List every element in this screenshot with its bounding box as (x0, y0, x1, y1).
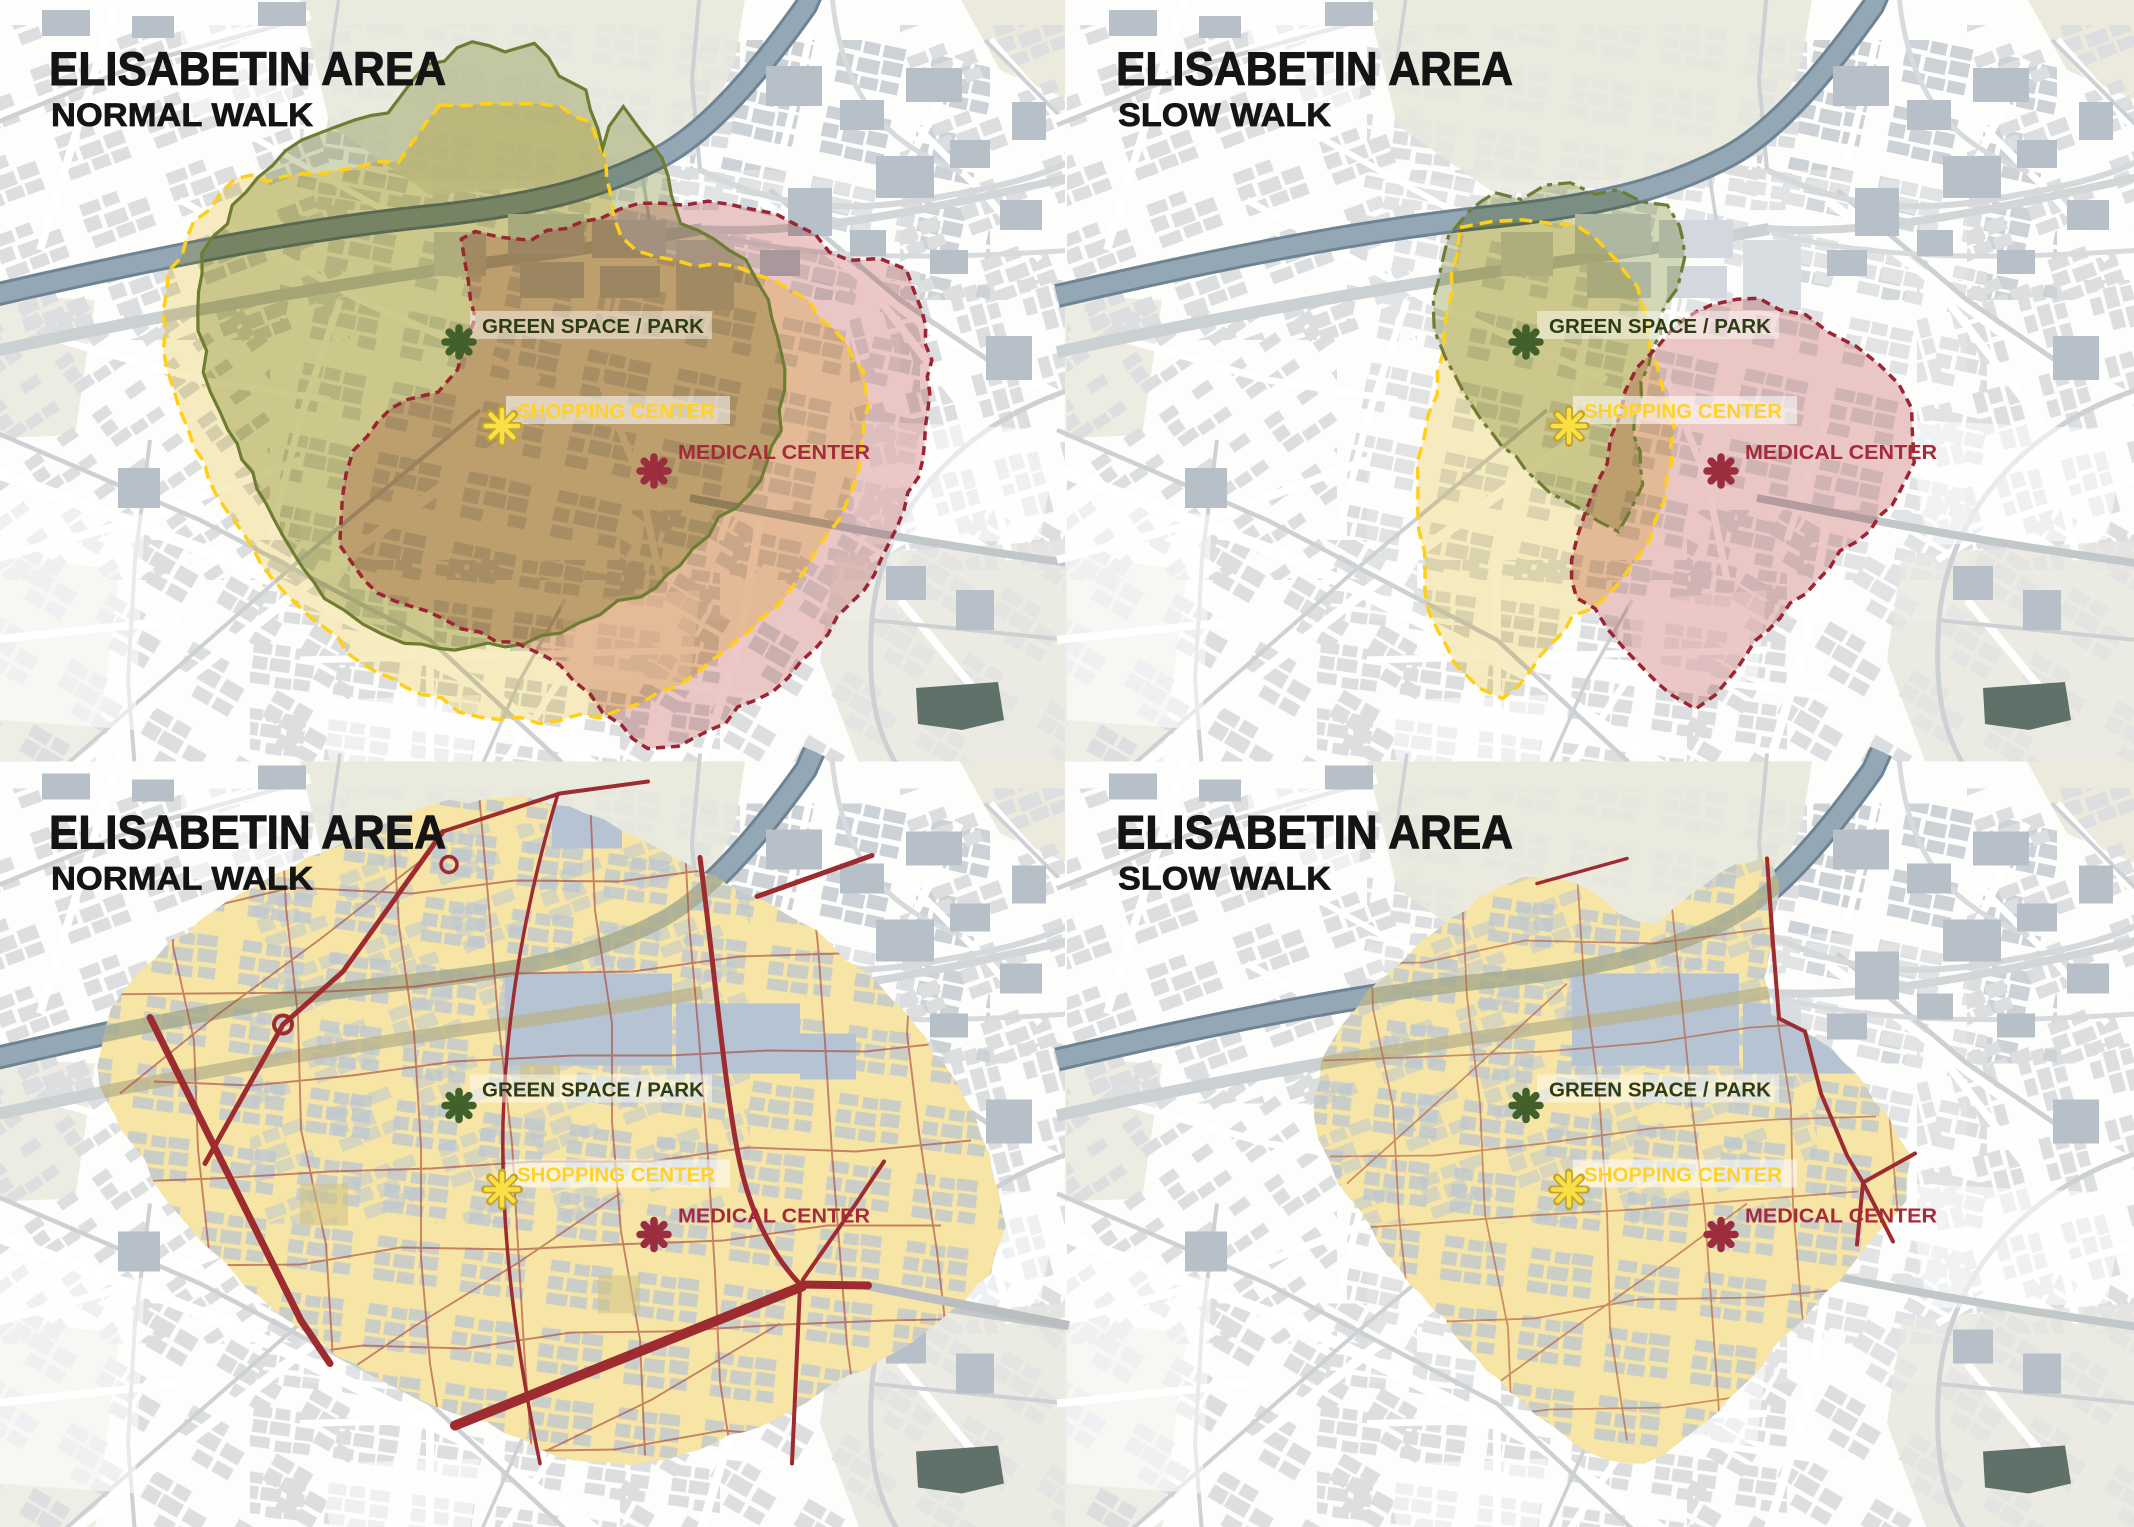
svg-text:GREEN SPACE / PARK: GREEN SPACE / PARK (1549, 1080, 1772, 1102)
svg-text:GREEN SPACE / PARK: GREEN SPACE / PARK (1549, 316, 1772, 338)
svg-text:ELISABETIN AREA: ELISABETIN AREA (49, 806, 446, 859)
svg-text:NORMAL WALK: NORMAL WALK (51, 861, 313, 897)
svg-text:MEDICAL CENTER: MEDICAL CENTER (1745, 442, 1938, 464)
svg-text:MEDICAL CENTER: MEDICAL CENTER (678, 442, 871, 464)
svg-text:SLOW WALK: SLOW WALK (1118, 861, 1331, 897)
svg-text:GREEN SPACE / PARK: GREEN SPACE / PARK (482, 1080, 705, 1102)
svg-text:ELISABETIN AREA: ELISABETIN AREA (1116, 806, 1513, 859)
svg-text:SHOPPING CENTER: SHOPPING CENTER (517, 401, 716, 423)
svg-text:NORMAL WALK: NORMAL WALK (51, 97, 313, 133)
svg-text:SLOW WALK: SLOW WALK (1118, 97, 1331, 133)
svg-text:SHOPPING CENTER: SHOPPING CENTER (1584, 401, 1783, 423)
svg-text:GREEN SPACE / PARK: GREEN SPACE / PARK (482, 316, 705, 338)
svg-text:ELISABETIN AREA: ELISABETIN AREA (49, 42, 446, 95)
svg-text:MEDICAL CENTER: MEDICAL CENTER (1745, 1206, 1938, 1228)
svg-text:SHOPPING CENTER: SHOPPING CENTER (1584, 1165, 1783, 1187)
svg-text:SHOPPING CENTER: SHOPPING CENTER (517, 1165, 716, 1187)
svg-text:ELISABETIN AREA: ELISABETIN AREA (1116, 42, 1513, 95)
svg-text:MEDICAL CENTER: MEDICAL CENTER (678, 1206, 871, 1228)
